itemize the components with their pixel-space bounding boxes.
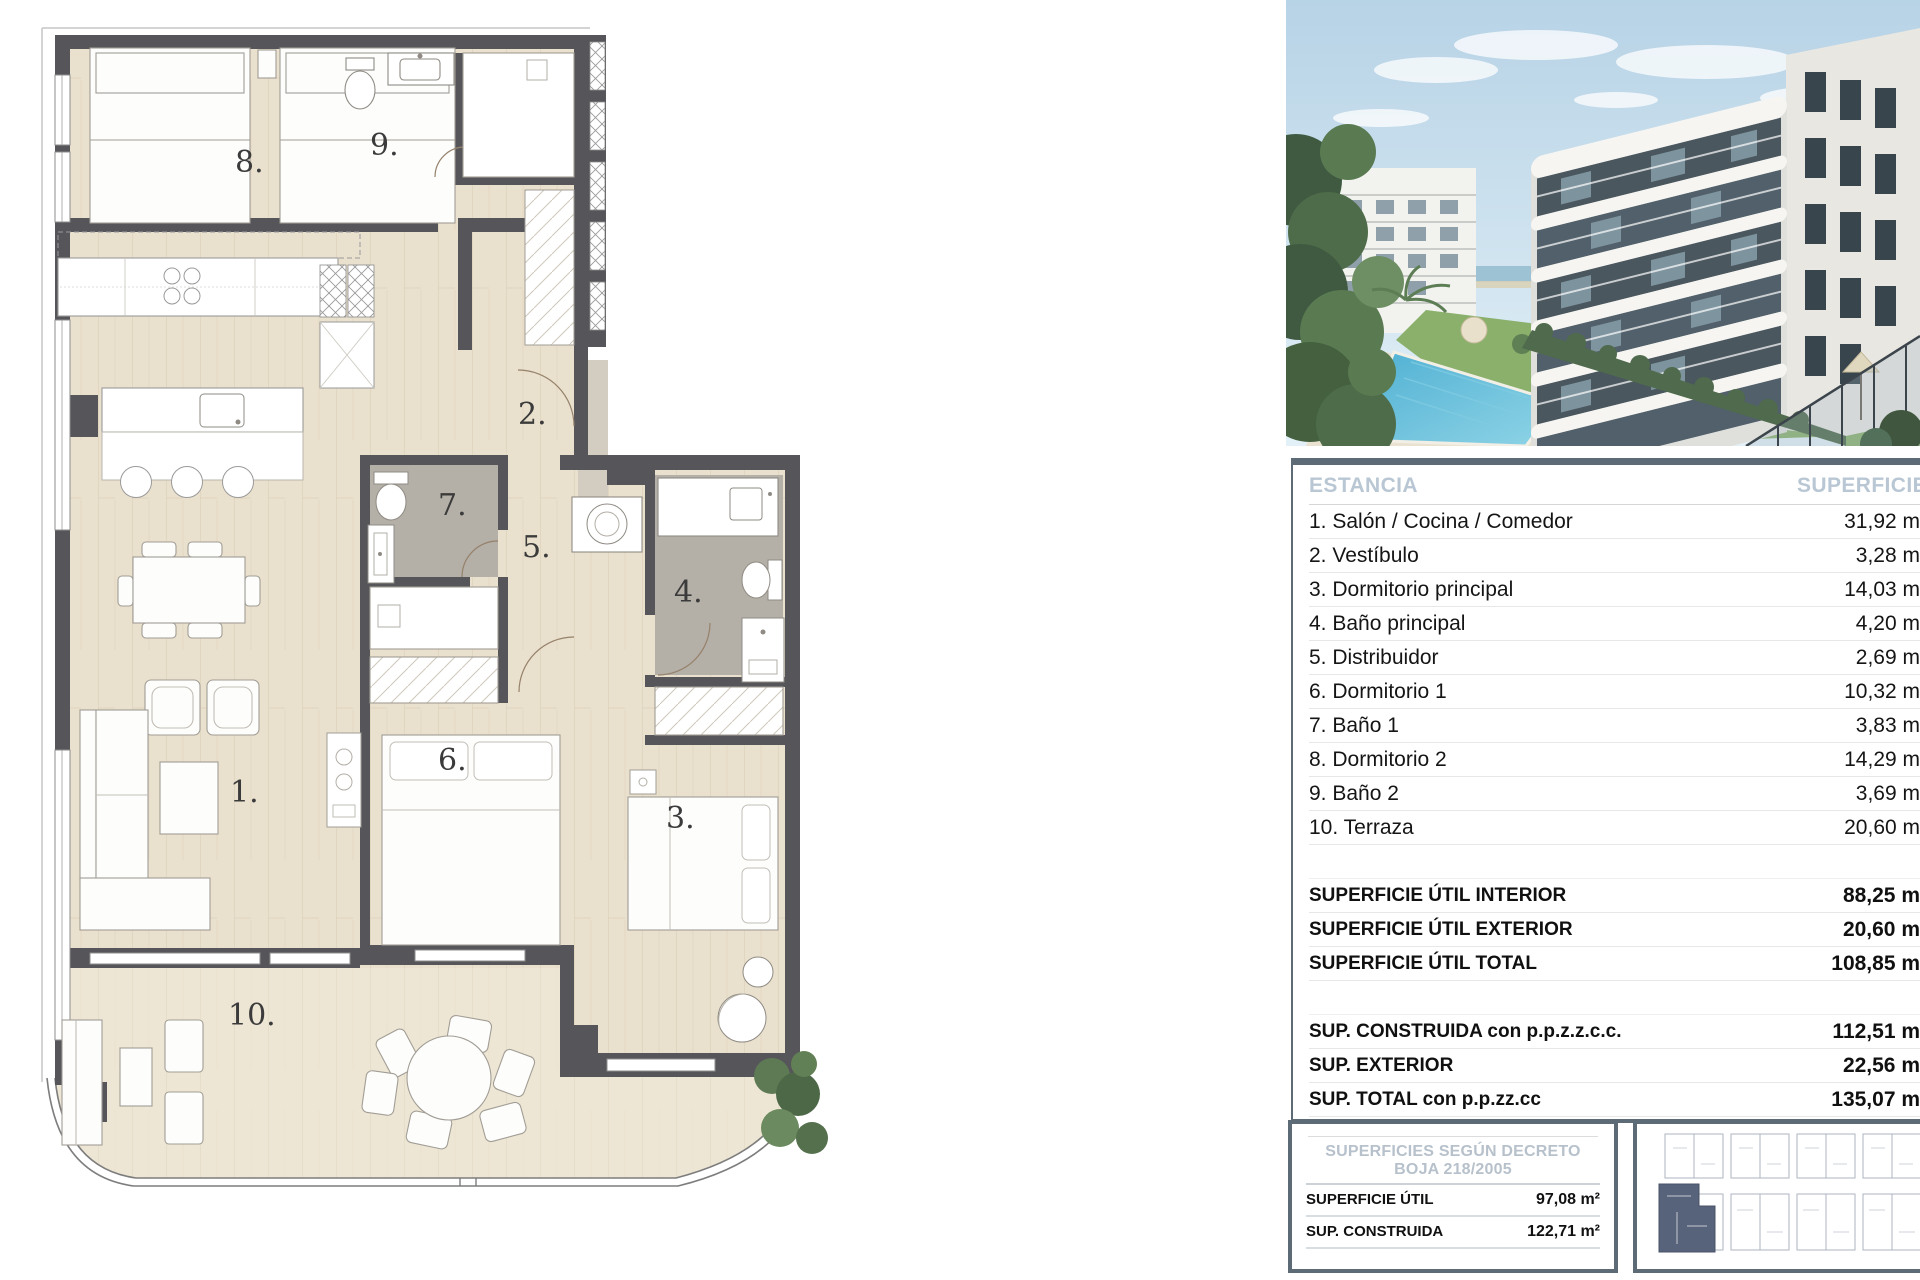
- room-label-8: 8.: [235, 145, 264, 180]
- table-row: 7. Baño 13,83 m²: [1309, 709, 1920, 743]
- table-row: 6. Dormitorio 110,32 m²: [1309, 675, 1920, 709]
- table-row: 5. Distribuidor2,69 m²: [1309, 641, 1920, 675]
- floor-plan: 1. 2. 3. 4. 5. 6. 7. 8. 9. 10.: [30, 20, 830, 1270]
- room-label-6: 6.: [438, 743, 467, 778]
- keyplan-thumbnail: [1637, 1124, 1920, 1269]
- area-table-header: ESTANCIA SUPERFICIE: [1309, 467, 1920, 505]
- table-row: 10. Terraza20,60 m²: [1309, 811, 1920, 845]
- table-row: 1. Salón / Cocina / Comedor31,92 m²: [1309, 505, 1920, 539]
- room-label-2: 2.: [518, 397, 547, 432]
- room-label-4: 4.: [674, 575, 703, 610]
- room-label-5: 5.: [522, 530, 551, 565]
- total-row: SUPERFICIE ÚTIL TOTAL108,85 m²: [1309, 947, 1920, 981]
- laundry-closet: [572, 497, 642, 552]
- constructed-row: SUP. CONSTRUIDA con p.p.z.z.c.c.112,51 m…: [1309, 1015, 1920, 1049]
- room-6-bed: [382, 735, 560, 945]
- room8-closet: [463, 53, 574, 177]
- building-photo: [1286, 0, 1920, 446]
- table-row: 9. Baño 23,69 m²: [1309, 777, 1920, 811]
- tv-unit: [327, 733, 361, 827]
- room-label-1: 1.: [230, 775, 259, 810]
- table-row: 4. Baño principal4,20 m²: [1309, 607, 1920, 641]
- terrace-door-glass: [90, 953, 260, 964]
- room-label-3: 3.: [666, 801, 695, 836]
- page: 1. 2. 3. 4. 5. 6. 7. 8. 9. 10.: [0, 0, 1920, 1280]
- table-row: 8. Dormitorio 214,29 m²: [1309, 743, 1920, 777]
- spacer-row: [1309, 845, 1920, 879]
- area-table: ESTANCIA SUPERFICIE 1. Salón / Cocina / …: [1291, 458, 1920, 1123]
- room-label-10: 10.: [228, 998, 276, 1033]
- hall-wardrobe: [370, 657, 498, 703]
- table-row: 3. Dormitorio principal14,03 m²: [1309, 573, 1920, 607]
- table-row: 2. Vestíbulo3,28 m²: [1309, 539, 1920, 573]
- header-estancia: ESTANCIA: [1309, 467, 1418, 504]
- floor-plan-svg: 1. 2. 3. 4. 5. 6. 7. 8. 9. 10.: [30, 20, 830, 1270]
- room3-window: [607, 1059, 715, 1071]
- header-superficie: SUPERFICIE: [1797, 467, 1920, 504]
- decree-box: SUPERFICIES SEGÚN DECRETO BOJA 218/2005 …: [1288, 1120, 1618, 1273]
- hall-closet: [370, 587, 498, 649]
- total-row: SUPERFICIE ÚTIL EXTERIOR20,60 m²: [1309, 913, 1920, 947]
- decree-row: SUPERFICIE ÚTIL 97,08 m²: [1306, 1185, 1600, 1217]
- room-label-7: 7.: [438, 488, 467, 523]
- total-row: SUPERFICIE ÚTIL INTERIOR88,25 m²: [1309, 879, 1920, 913]
- constructed-row: SUP. EXTERIOR22,56 m²: [1309, 1049, 1920, 1083]
- room6-window: [415, 950, 525, 961]
- spacer-row: [1309, 981, 1920, 1015]
- shafts: [590, 42, 605, 330]
- room-label-9: 9.: [370, 128, 399, 163]
- entry-wardrobe: [525, 190, 574, 345]
- constructed-row: SUP. TOTAL con p.p.zz.cc135,07 m²: [1309, 1083, 1920, 1117]
- room3-wardrobe: [655, 687, 783, 735]
- decree-row: SUP. CONSTRUIDA 122,71 m²: [1306, 1217, 1600, 1249]
- keyplan-box: [1633, 1120, 1920, 1273]
- decree-title: SUPERFICIES SEGÚN DECRETO BOJA 218/2005: [1306, 1143, 1600, 1185]
